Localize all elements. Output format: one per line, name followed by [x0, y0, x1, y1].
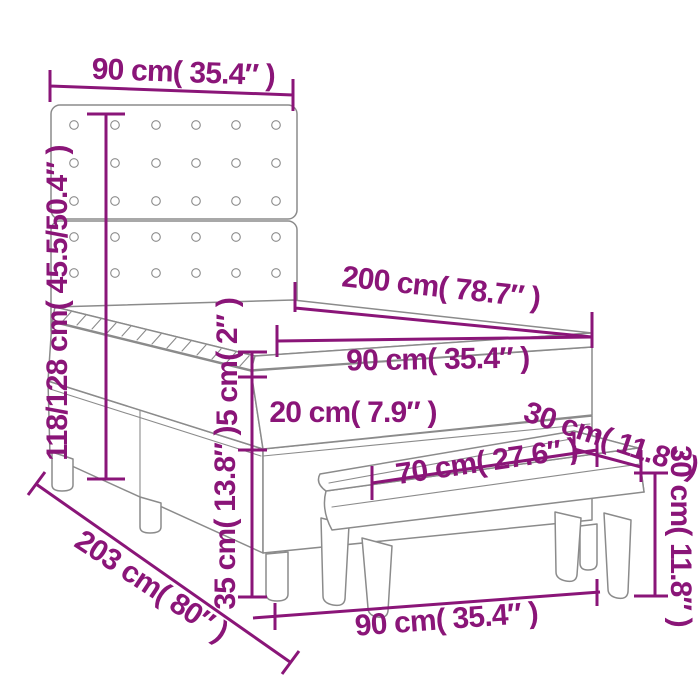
bench-leg: [604, 513, 631, 598]
dim-bench-height-label: 30 cm( 11.8″ ): [664, 445, 697, 627]
dim-base-width: 90 cm( 35.4″ ): [253, 579, 600, 643]
dim-headboard-width: 90 cm( 35.4″ ): [50, 53, 293, 111]
bed-leg: [580, 524, 597, 570]
dim-topper-height-label: 5 cm( 2″ ): [211, 298, 244, 426]
bed-dimension-diagram: 90 cm( 35.4″ ) 118/128 cm( 45.5/50.4″ ) …: [0, 0, 700, 700]
bench-leg: [362, 538, 392, 617]
dim-bed-length-label: 200 cm( 78.7″ ): [340, 260, 542, 315]
dim-overall-height-label: 118/128 cm( 45.5/50.4″ ): [41, 145, 74, 460]
dim-base-height-label: 35 cm( 13.8″ ): [209, 426, 242, 609]
dim-headboard-width-label: 90 cm( 35.4″ ): [91, 53, 275, 93]
bench-leg: [321, 518, 349, 605]
bed-leg: [140, 497, 161, 533]
dim-mattress-height-label: 20 cm( 7.9″ ): [269, 396, 436, 429]
dim-mattress-width-label: 90 cm( 35.4″ ): [346, 342, 530, 378]
diagram-canvas: 90 cm( 35.4″ ) 118/128 cm( 45.5/50.4″ ) …: [0, 0, 700, 700]
bench-leg: [555, 512, 581, 581]
dim-bench-height: 30 cm( 11.8″ ): [634, 445, 697, 627]
bed-leg: [266, 552, 288, 601]
headboard-upper-panel: [51, 105, 297, 219]
